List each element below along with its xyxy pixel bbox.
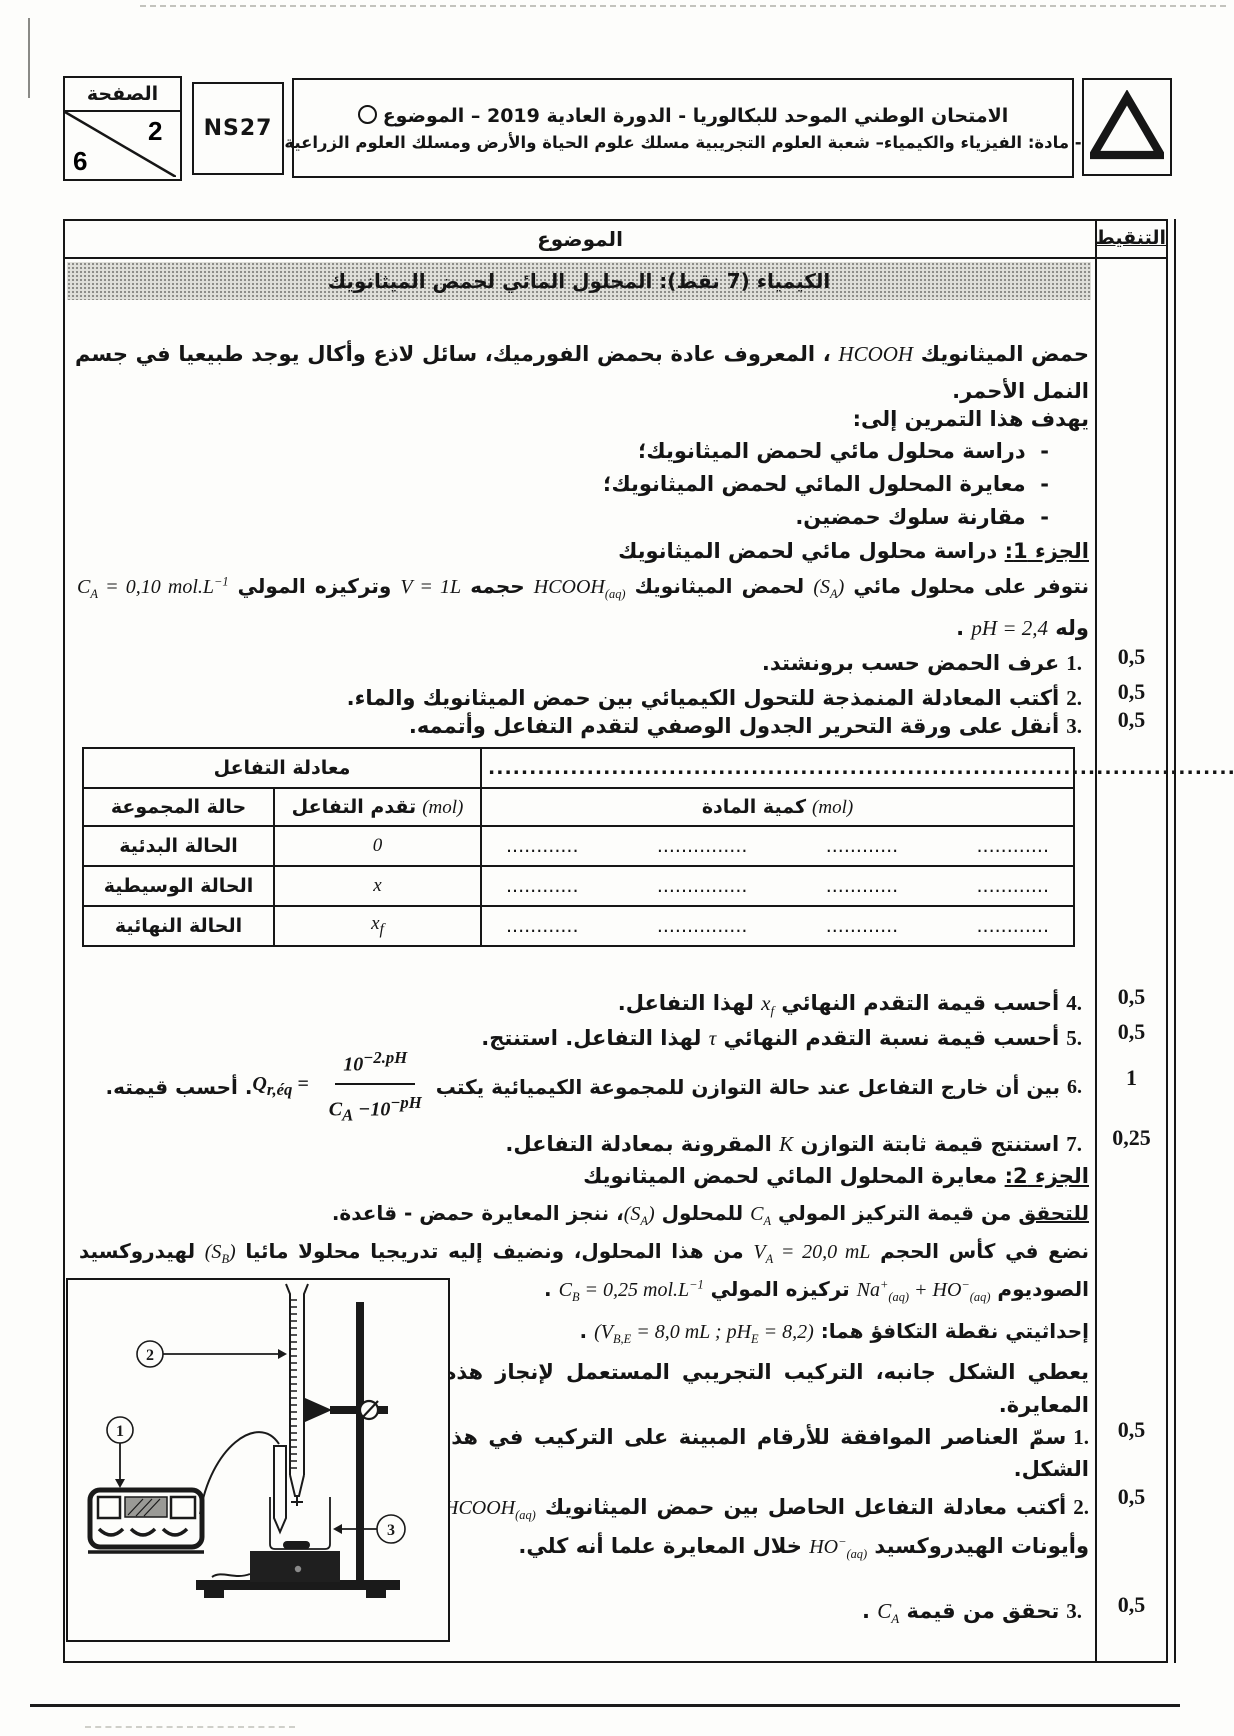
titration-figure: 1 2 3	[66, 1278, 450, 1642]
k-symbol: K	[779, 1132, 793, 1156]
page-label: الصفحة	[65, 78, 180, 112]
label-2-number: 2	[146, 1347, 154, 1364]
equivalence-point-values: (VB,E = 8,0 mL ; pHE = 8,2)	[594, 1321, 814, 1343]
chemistry-banner: الكيمياء (7 نقط): المحلول المائي لحمض ال…	[67, 262, 1091, 300]
exam-title-box: الامتحان الوطني الموحد للبكالوريا - الدو…	[292, 78, 1074, 178]
part2-line2: نضع في كأس الحجم VA = 20,0 mL من هذا الم…	[79, 1236, 1089, 1267]
row-intermediate-amounts: ........................................…	[481, 866, 1074, 906]
question-p1-4: 4.أحسب قيمة التقدم النهائي xf لهذا التفا…	[618, 988, 1082, 1018]
part2-heading: الجزء 2: معايرة المحلول المائي لحمض المي…	[583, 1161, 1089, 1191]
cb-value: CB = 0,25 mol.L−1	[559, 1279, 704, 1301]
circle-icon	[358, 105, 377, 124]
marks-column-header: التنقيط	[1095, 221, 1166, 257]
part2-line3: الصوديوم Na+(aq) + HO−(aq) تركيزه المولي…	[544, 1274, 1089, 1305]
ca-value: CA = 0,10 mol.L−1	[77, 576, 229, 598]
label-3-number: 3	[387, 1522, 395, 1539]
exam-title-line1: الامتحان الوطني الموحد للبكالوريا - الدو…	[358, 105, 1009, 127]
scan-page-edge	[28, 18, 30, 98]
row-intermediate-progress: x	[274, 866, 481, 906]
part2-line5: يعطي الشكل جانبه، التركيب التجريبي المست…	[444, 1356, 1089, 1422]
ph-meter	[88, 1490, 204, 1552]
part2-line4: إحداثيتي نقطة التكافؤ هما: (VB,E = 8,0 m…	[580, 1316, 1089, 1347]
amount-column-header: كمية المادة (mol)	[481, 788, 1074, 826]
mark-p2-q1: 0,5	[1097, 1417, 1166, 1443]
part1-data-line: نتوفر على محلول مائي (SA) لحمض الميثانوي…	[77, 571, 1089, 602]
hcooh-aq-formula: HCOOH(aq)	[444, 1497, 536, 1519]
page-current: 2	[148, 116, 162, 146]
burette	[286, 1284, 308, 1506]
row-initial-progress: 0	[274, 826, 481, 866]
qr-equation: Qr,éq = 10−2.pH CA −10−pH	[252, 1043, 435, 1130]
stir-bar	[283, 1541, 310, 1549]
row-initial-amounts: ........................................…	[481, 826, 1074, 866]
hcooh-formula: HCOOH	[838, 342, 913, 366]
reaction-progress-table: معادلة التفاعل .........................…	[82, 747, 1075, 947]
hydroxide-formula: HO−(aq)	[809, 1536, 867, 1558]
mark-p2-q2: 0,5	[1097, 1484, 1166, 1510]
state-column-header: حالة المجموعة	[83, 788, 274, 826]
mark-p1-q7: 0,25	[1097, 1125, 1166, 1151]
sb-symbol: (SB)	[205, 1241, 236, 1263]
exam-title-line2: - مادة: الفيزياء والكيمياء– شعبة العلوم …	[284, 133, 1081, 152]
page-total: 6	[73, 146, 87, 176]
row-initial-label: الحالة البدئية	[83, 826, 274, 866]
row-final-label: الحالة النهائية	[83, 906, 274, 946]
exam-code-box: NS27	[192, 82, 284, 175]
content-frame: الموضوع التنقيط الكيمياء (7 نقط): المحلو…	[63, 219, 1168, 1663]
xf-symbol: xf	[761, 991, 774, 1015]
subject-column-header: الموضوع	[65, 221, 1095, 257]
equation-label-cell: معادلة التفاعل	[83, 748, 481, 788]
row-intermediate-label: الحالة الوسيطية	[83, 866, 274, 906]
mark-p1-q4: 0,5	[1097, 984, 1166, 1010]
sodium-ions-formula: Na+(aq) + HO−(aq)	[857, 1279, 991, 1301]
stand-rod	[356, 1302, 364, 1582]
question-p1-7: 7.استنتج قيمة ثابتة التوازن K المقرونة ب…	[505, 1129, 1082, 1159]
sa-symbol: (SA)	[624, 1203, 655, 1225]
aim-item-2: - معايرة المحلول المائي لحمض الميثانويك؛	[603, 469, 1049, 499]
scan-dash-line-top	[140, 5, 1226, 7]
mark-p1-q2: 0,5	[1097, 679, 1166, 705]
aim-item-3: - مقارنة سلوك حمضين.	[795, 502, 1049, 532]
delta-logo-icon	[1090, 90, 1164, 164]
row-final-amounts: ........................................…	[481, 906, 1074, 946]
titration-apparatus-drawing: 1 2 3	[68, 1280, 448, 1640]
question-p1-1: 1.عرف الحمض حسب برونشتد.	[762, 648, 1082, 678]
va-value: VA = 20,0 mL	[753, 1241, 870, 1263]
mark-p1-q1: 0,5	[1097, 644, 1166, 670]
part2-line1: للتحقق من قيمة التركيز المولي CA للمحلول…	[332, 1198, 1089, 1229]
label-2	[137, 1341, 287, 1367]
marks-column-separator	[1095, 221, 1097, 1661]
aims-title: يهدف هذا التمرين إلى:	[853, 404, 1089, 434]
question-p2-2: 2.أكتب معادلة التفاعل الحاصل بين حمض الم…	[444, 1488, 1089, 1566]
progress-column-header: تقدم التفاعل (mol)	[274, 788, 481, 826]
burette-clamp	[305, 1398, 388, 1422]
electrode-cable	[200, 1432, 279, 1514]
magnetic-stirrer	[212, 1551, 340, 1582]
mark-p1-q3: 0,5	[1097, 707, 1166, 733]
question-p1-3: 3.أنقل على ورقة التحرير الجدول الوصفي لت…	[409, 711, 1082, 741]
mark-p1-q5: 0,5	[1097, 1019, 1166, 1045]
exam-code: NS27	[204, 116, 273, 141]
page-fraction: 2 6	[65, 112, 176, 177]
equation-dots-cell: ........................................…	[481, 748, 1074, 788]
hcooh-aq-formula: HCOOH(aq)	[534, 576, 626, 598]
row-final-progress: xf	[274, 906, 481, 946]
label-1-number: 1	[116, 1423, 124, 1440]
ph-electrode	[200, 1432, 286, 1532]
outer-right-rule	[1174, 219, 1176, 1663]
page-bottom-rule	[30, 1704, 1180, 1707]
question-p2-1: 1.سمّ العناصر الموافقة للأرقام المبينة ع…	[444, 1421, 1089, 1485]
scan-dash-line-bottom	[85, 1726, 295, 1728]
burette-tap	[291, 1496, 303, 1506]
sa-symbol: (SA)	[813, 576, 844, 598]
question-p2-3: 3.تحقق من قيمة CA .	[862, 1596, 1082, 1626]
qr-fraction: 10−2.pH CA −10−pH	[321, 1043, 430, 1130]
ph-line: وله pH = 2,4 .	[956, 613, 1089, 643]
ph-value: pH = 2,4	[971, 616, 1048, 640]
page-number-box: الصفحة 2 6	[63, 76, 182, 181]
ca-symbol: CA	[877, 1599, 899, 1623]
logo-box	[1082, 78, 1172, 176]
mark-p2-q3: 0,5	[1097, 1592, 1166, 1618]
intro-paragraph: حمض الميثانويك HCOOH ، المعروف عادة بحمض…	[75, 336, 1089, 410]
ca-symbol: CA	[750, 1203, 771, 1225]
question-p1-2: 2.أكتب المعادلة المنمذجة للتحول الكيميائ…	[347, 683, 1082, 713]
part1-heading: الجزء 1: دراسة محلول مائي لحمض الميثانوي…	[618, 536, 1089, 566]
volume-value: V = 1L	[400, 576, 461, 598]
aim-item-1: - دراسة محلول مائي لحمض الميثانويك؛	[638, 436, 1049, 466]
mark-p1-q6: 1	[1097, 1065, 1166, 1091]
question-p1-6: 6. بين أن خارج التفاعل عند حالة التوازن …	[106, 1048, 1082, 1126]
